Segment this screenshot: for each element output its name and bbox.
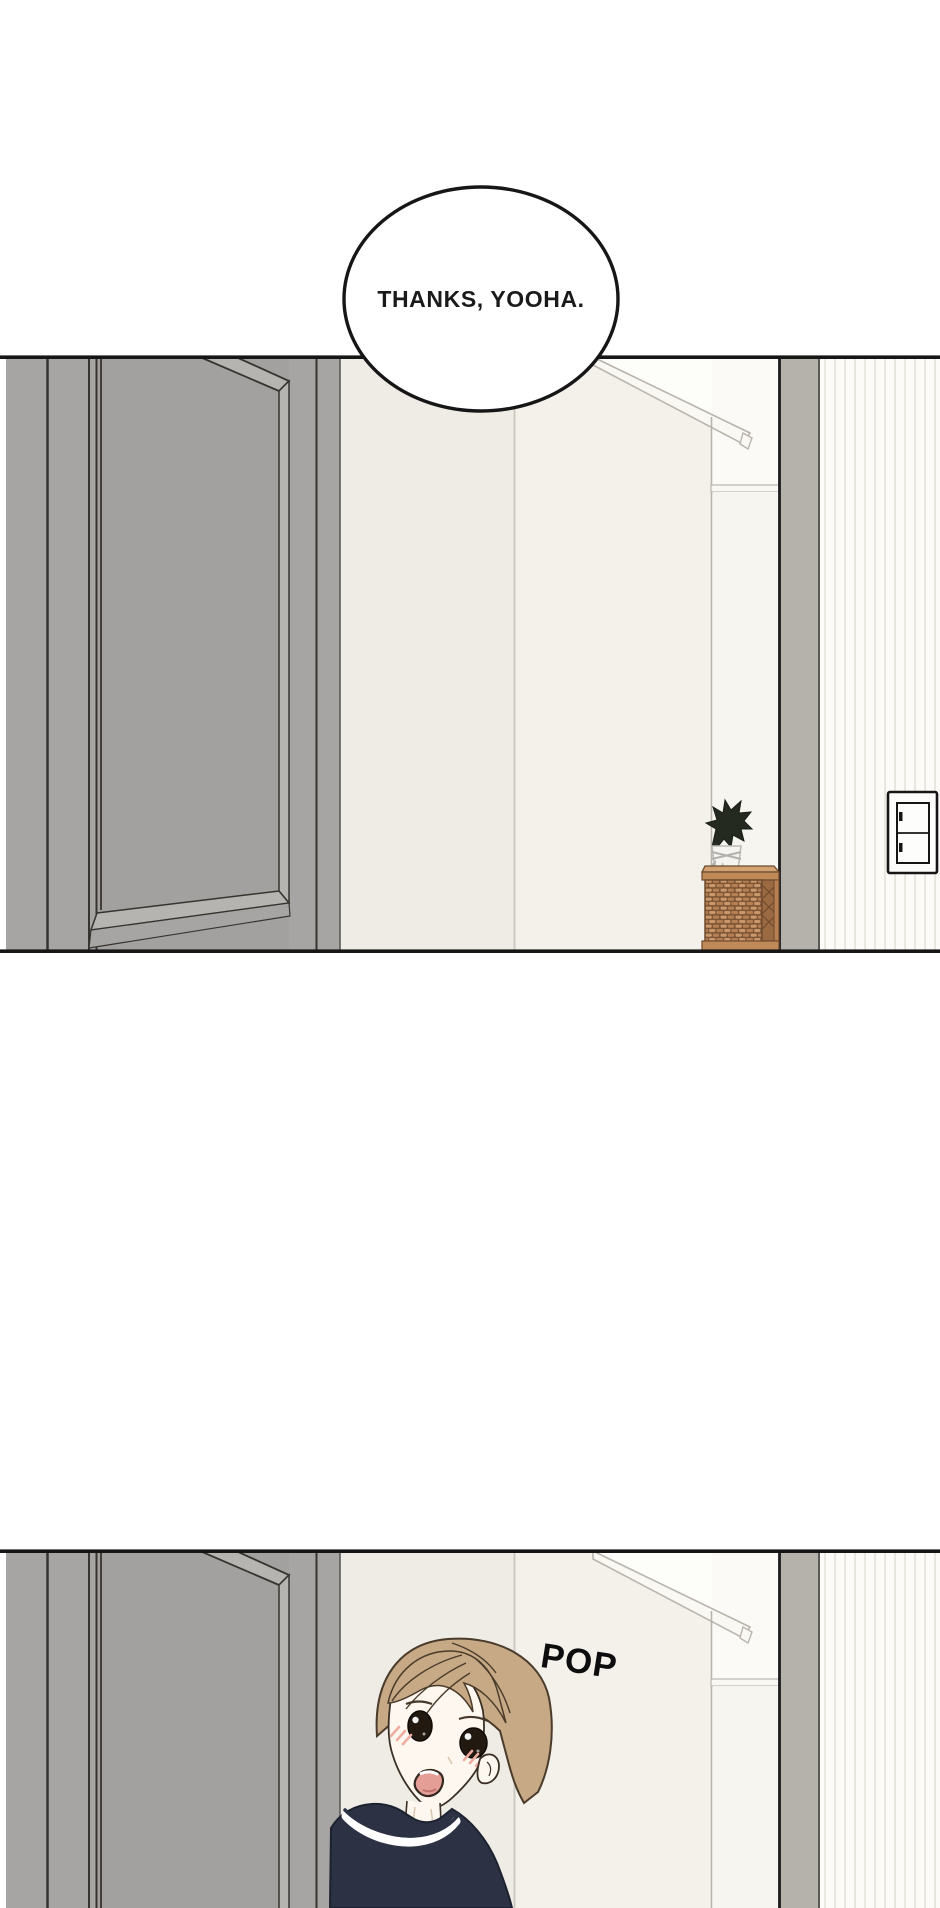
cabinet-top-edge [702,872,779,880]
speech-bubble-text: THANKS, YOOHA. [377,286,584,312]
panel1-scene [0,357,940,951]
mouth [415,1770,443,1796]
light-switch [888,792,937,873]
cabinet-top-face [702,866,779,872]
switch-tick [899,843,903,852]
switch-tick [899,812,903,821]
webtoon-page: THANKS, YOOHA. [0,0,940,1908]
eye-right [460,1728,487,1758]
panel-2: POP [0,1551,940,1908]
cabinet-wicker-front [705,880,762,943]
cabinet-corner-post [774,880,779,943]
speech-bubble: THANKS, YOOHA. [344,187,618,411]
panel2-top-border [0,1549,940,1553]
eye-left [408,1711,432,1741]
panel1-bottom-border [0,949,940,953]
wicker-cabinet [702,866,779,951]
panel-1 [0,357,940,951]
